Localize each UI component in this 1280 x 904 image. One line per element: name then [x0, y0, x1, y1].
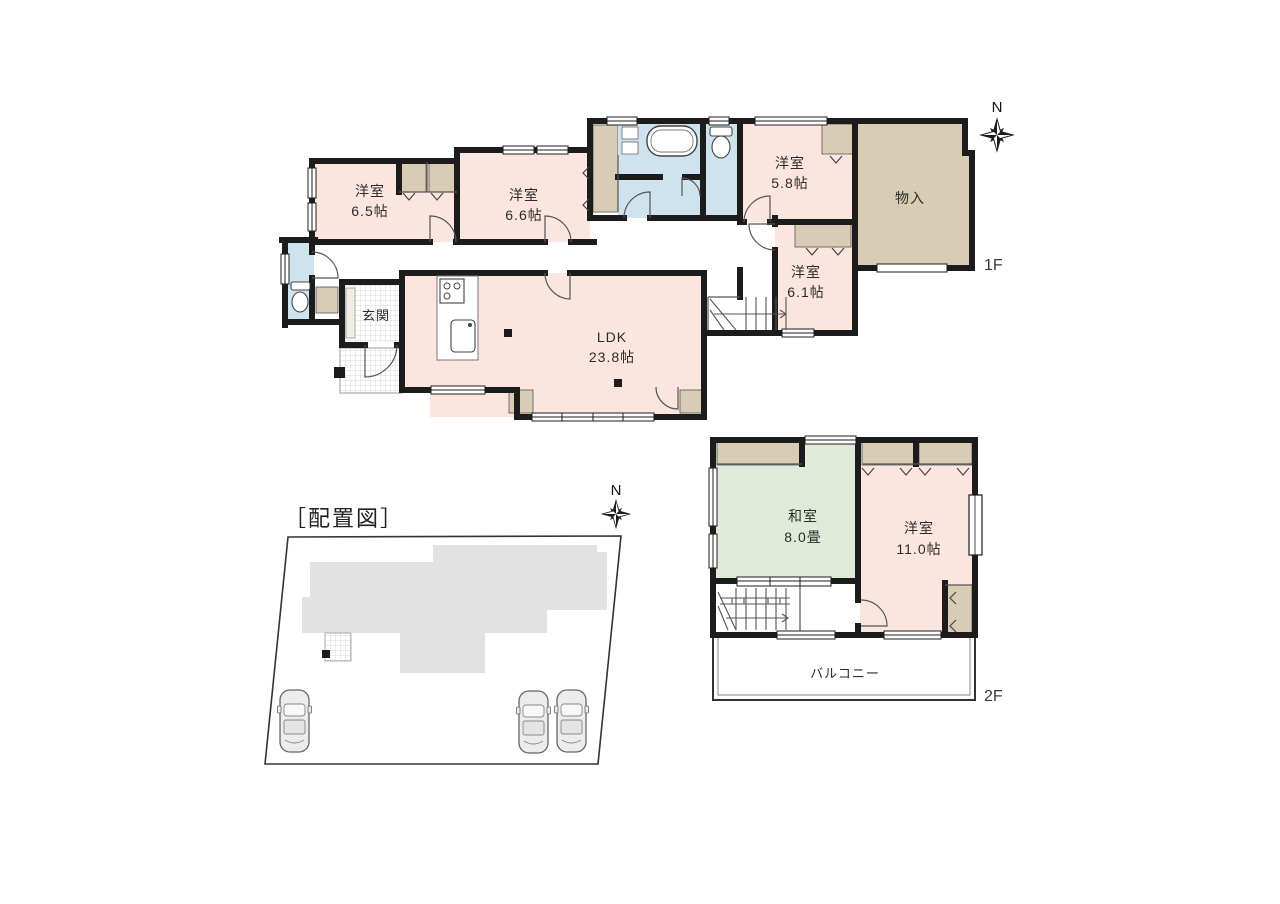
- shoe-cabinet: [346, 288, 355, 338]
- label-floor-2f: 2F: [984, 688, 1003, 705]
- label-room66-size: 6.6帖: [505, 207, 542, 223]
- label-ldk-name: LDK: [597, 329, 627, 345]
- site-porch-post: [322, 650, 330, 658]
- car-icon-2: [517, 691, 551, 753]
- car-icon-1: [278, 690, 312, 752]
- label-room110-name: 洋室: [904, 520, 934, 536]
- floorplan-page: 洋室 6.5帖 洋室 6.6帖 洋室 5.8帖 物入 洋室 6.1帖 玄関 LD…: [0, 0, 1280, 904]
- closet-2f-a: [862, 441, 914, 465]
- stairs-2f: [718, 588, 790, 630]
- label-floor-1f: 1F: [984, 257, 1003, 274]
- compass-site-n: N: [611, 482, 622, 499]
- floorplan-image: 洋室 6.5帖 洋室 6.6帖 洋室 5.8帖 物入 洋室 6.1帖 玄関 LD…: [0, 0, 1280, 904]
- closet-58: [822, 124, 854, 154]
- kitchen-counter: [437, 276, 478, 360]
- closet-65-a: [400, 162, 426, 192]
- pillar-ldk-a: [504, 329, 512, 337]
- porch-post: [334, 367, 345, 378]
- label-monoire: 物入: [895, 190, 925, 206]
- label-room110-size: 11.0帖: [896, 541, 941, 557]
- bathtub-icon: [647, 126, 697, 156]
- site-plan: ［配置図］: [265, 482, 630, 764]
- toilet-icon-bath: [710, 127, 732, 158]
- label-ldk-size: 23.8帖: [589, 349, 635, 365]
- floor1-plan: 洋室 6.5帖 洋室 6.6帖 洋室 5.8帖 物入 洋室 6.1帖 玄関 LD…: [281, 99, 1013, 421]
- label-genkan: 玄関: [362, 308, 390, 323]
- closet-2f-b: [919, 441, 972, 465]
- compass-1f-n: N: [992, 99, 1003, 116]
- label-washitsu-size: 8.0畳: [784, 529, 821, 545]
- label-room66-name: 洋室: [509, 187, 539, 203]
- bay-window-2f: [969, 495, 982, 555]
- label-room58-size: 5.8帖: [771, 175, 808, 191]
- label-balcony: バルコニー: [810, 666, 880, 681]
- site-plan-title: ［配置図］: [284, 506, 404, 531]
- label-washitsu-name: 和室: [788, 508, 818, 524]
- post-ldk-a: [509, 390, 533, 413]
- label-room61-name: 洋室: [791, 264, 821, 280]
- closet-2f-washitsu: [717, 441, 802, 465]
- compass-site-icon: N: [602, 482, 629, 528]
- label-room65-size: 6.5帖: [351, 203, 388, 219]
- compass-1f-icon: N: [981, 99, 1013, 151]
- toilet-icon-1f: [291, 282, 310, 312]
- floor2-plan: 和室 8.0畳 洋室 11.0帖 バルコニー 2F: [709, 436, 1003, 705]
- closet-65-b: [429, 162, 455, 192]
- label-room61-size: 6.1帖: [787, 284, 824, 300]
- label-room58-name: 洋室: [775, 155, 805, 171]
- car-icon-3: [555, 690, 589, 752]
- pillar-ldk-b: [614, 379, 622, 387]
- label-room65-name: 洋室: [355, 183, 385, 199]
- cabinet-hall: [316, 287, 338, 313]
- closet-66: [593, 125, 618, 212]
- post-ldk-b: [680, 390, 704, 413]
- porch: [340, 348, 402, 393]
